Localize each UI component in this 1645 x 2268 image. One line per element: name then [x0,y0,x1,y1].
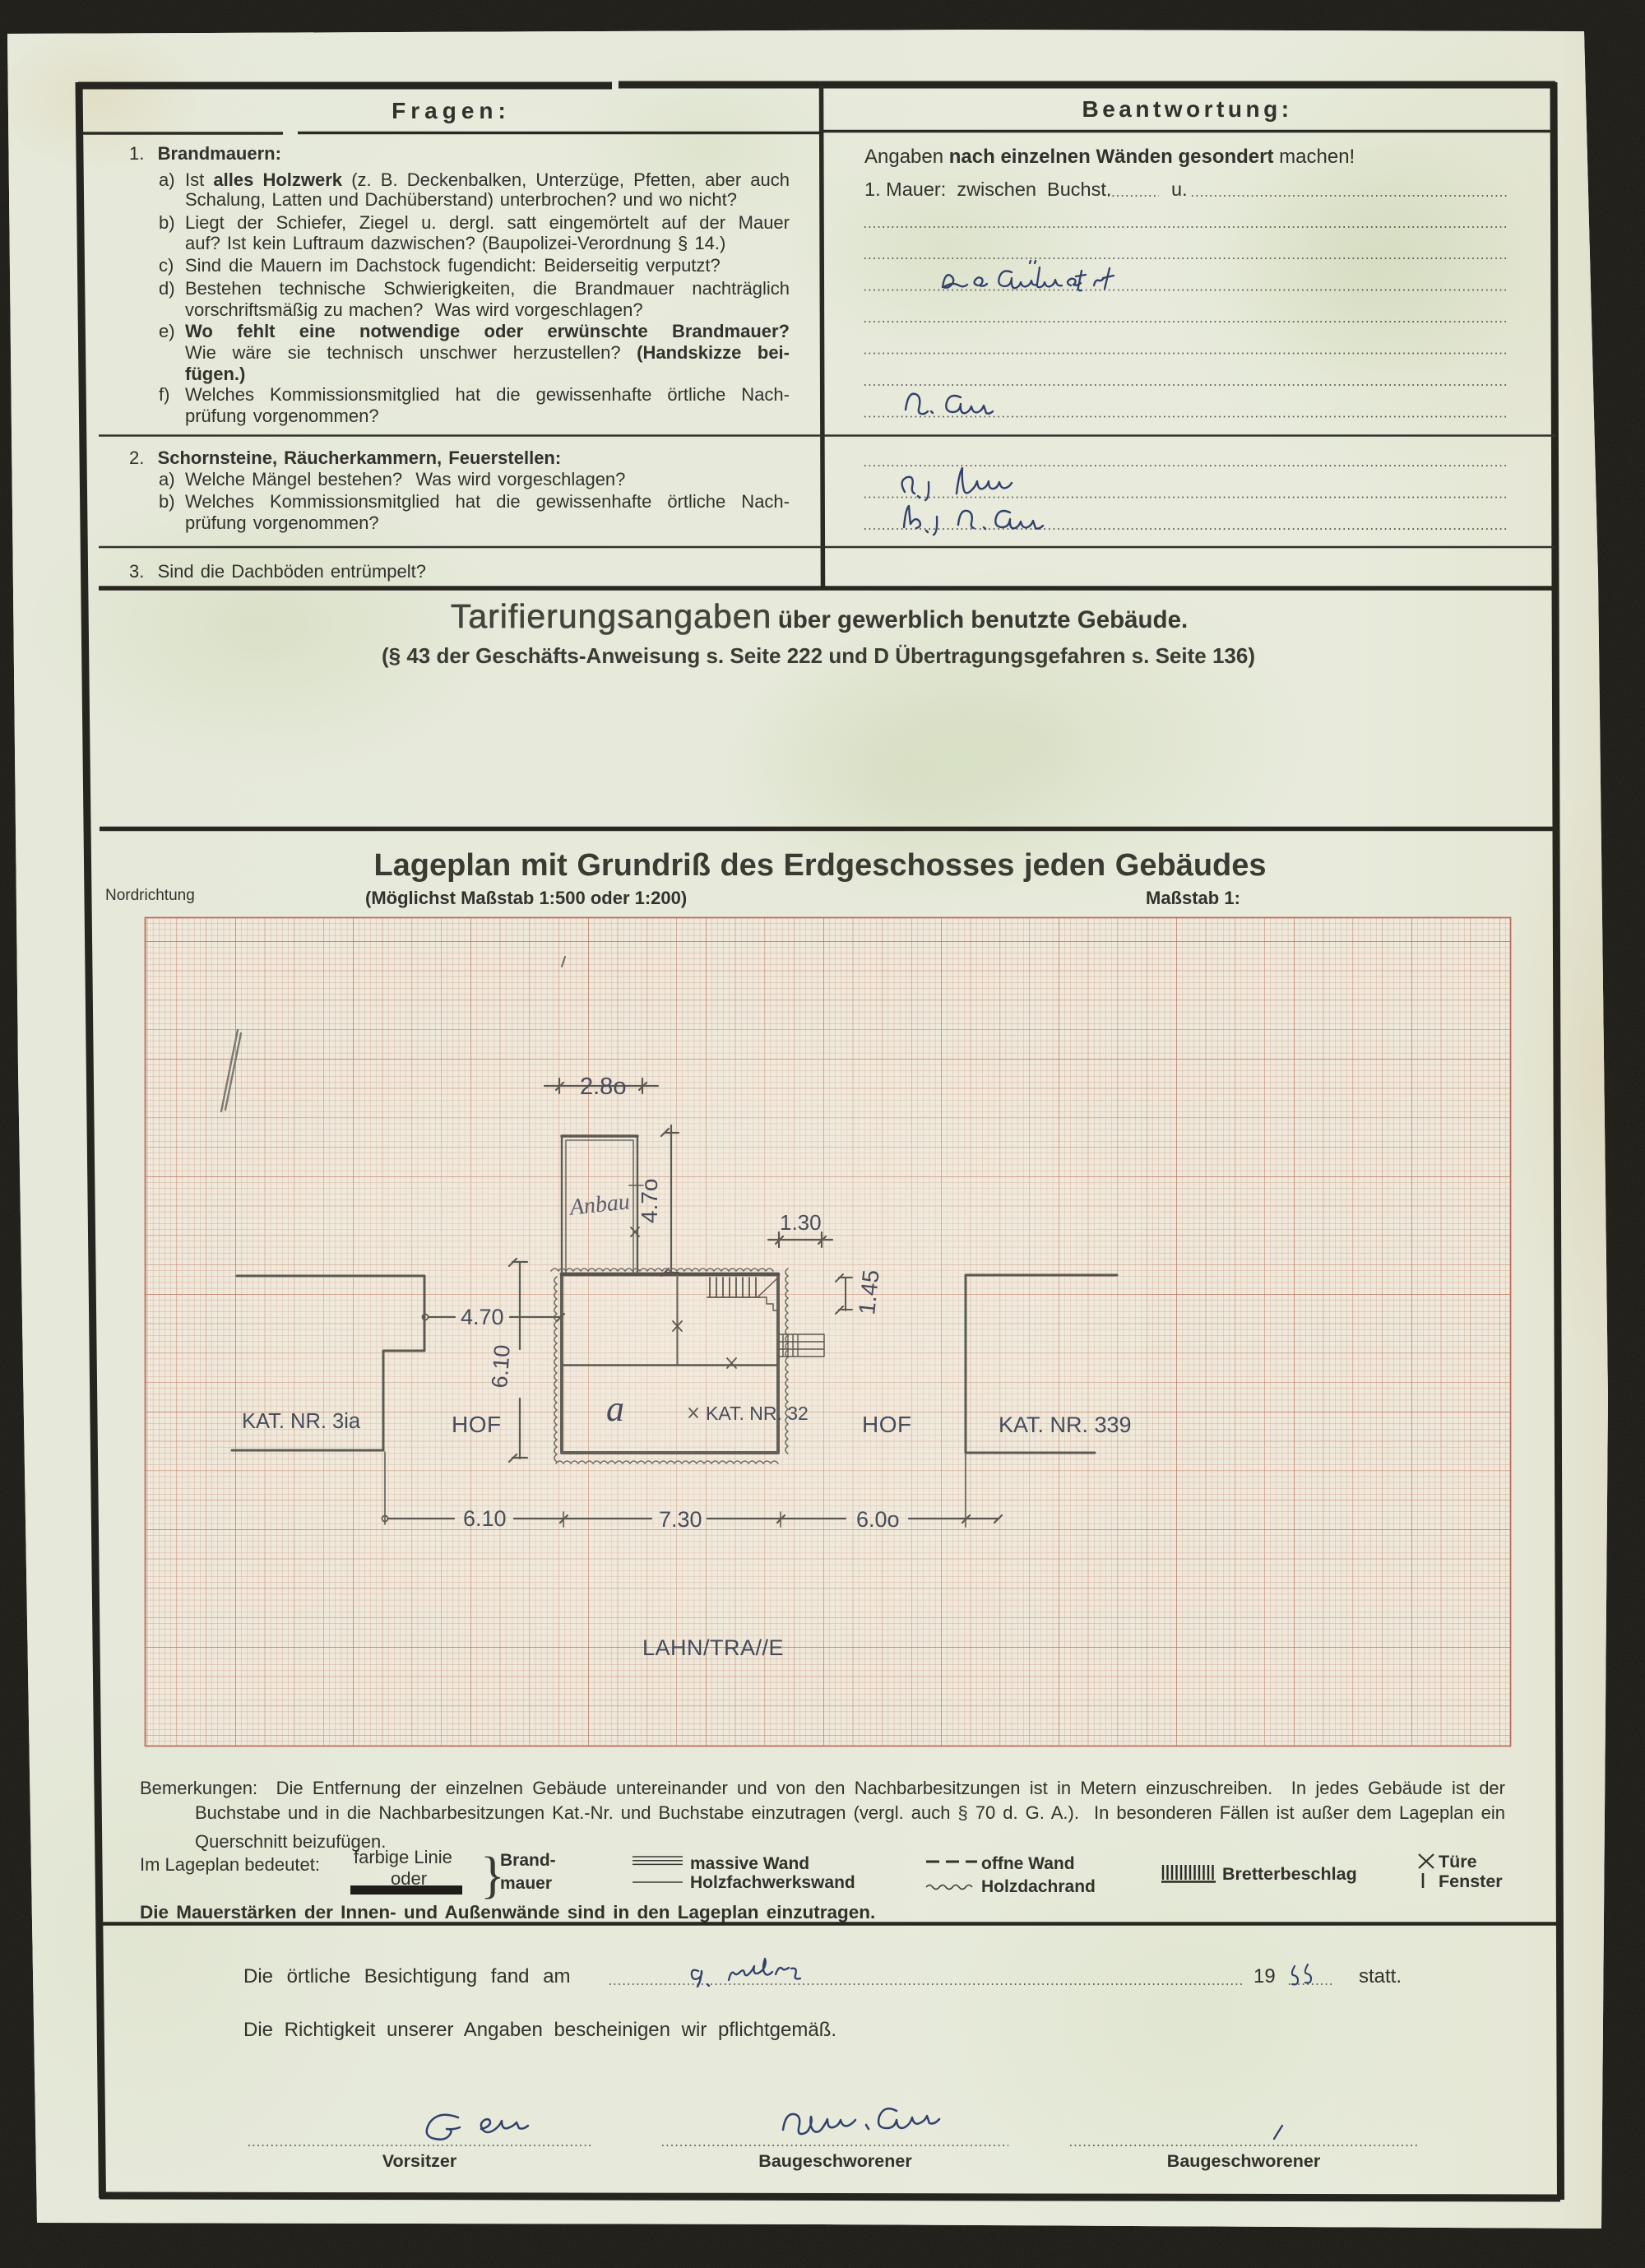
svg-text:2.8o: 2.8o [580,1074,626,1100]
svg-text:LAHN/TRA//E: LAHN/TRA//E [642,1635,784,1660]
svg-text:KAT. NR. 339: KAT. NR. 339 [999,1412,1132,1437]
svg-text:KAT. NR. 3ia: KAT. NR. 3ia [242,1410,361,1433]
svg-text:KAT. NR. 32: KAT. NR. 32 [706,1403,809,1424]
svg-text:4.7o: 4.7o [637,1179,662,1224]
svg-text:1.30: 1.30 [780,1210,822,1235]
svg-text:6.10: 6.10 [463,1506,507,1531]
svg-text:1.45: 1.45 [854,1269,884,1315]
svg-text:HOF: HOF [862,1412,912,1437]
svg-text:6.10: 6.10 [487,1344,515,1389]
svg-text:7.30: 7.30 [659,1507,702,1532]
svg-text:a: a [606,1389,624,1429]
svg-text:4.70: 4.70 [461,1305,504,1329]
svg-text:6.0o: 6.0o [856,1507,900,1532]
svg-text:HOF: HOF [452,1412,502,1437]
